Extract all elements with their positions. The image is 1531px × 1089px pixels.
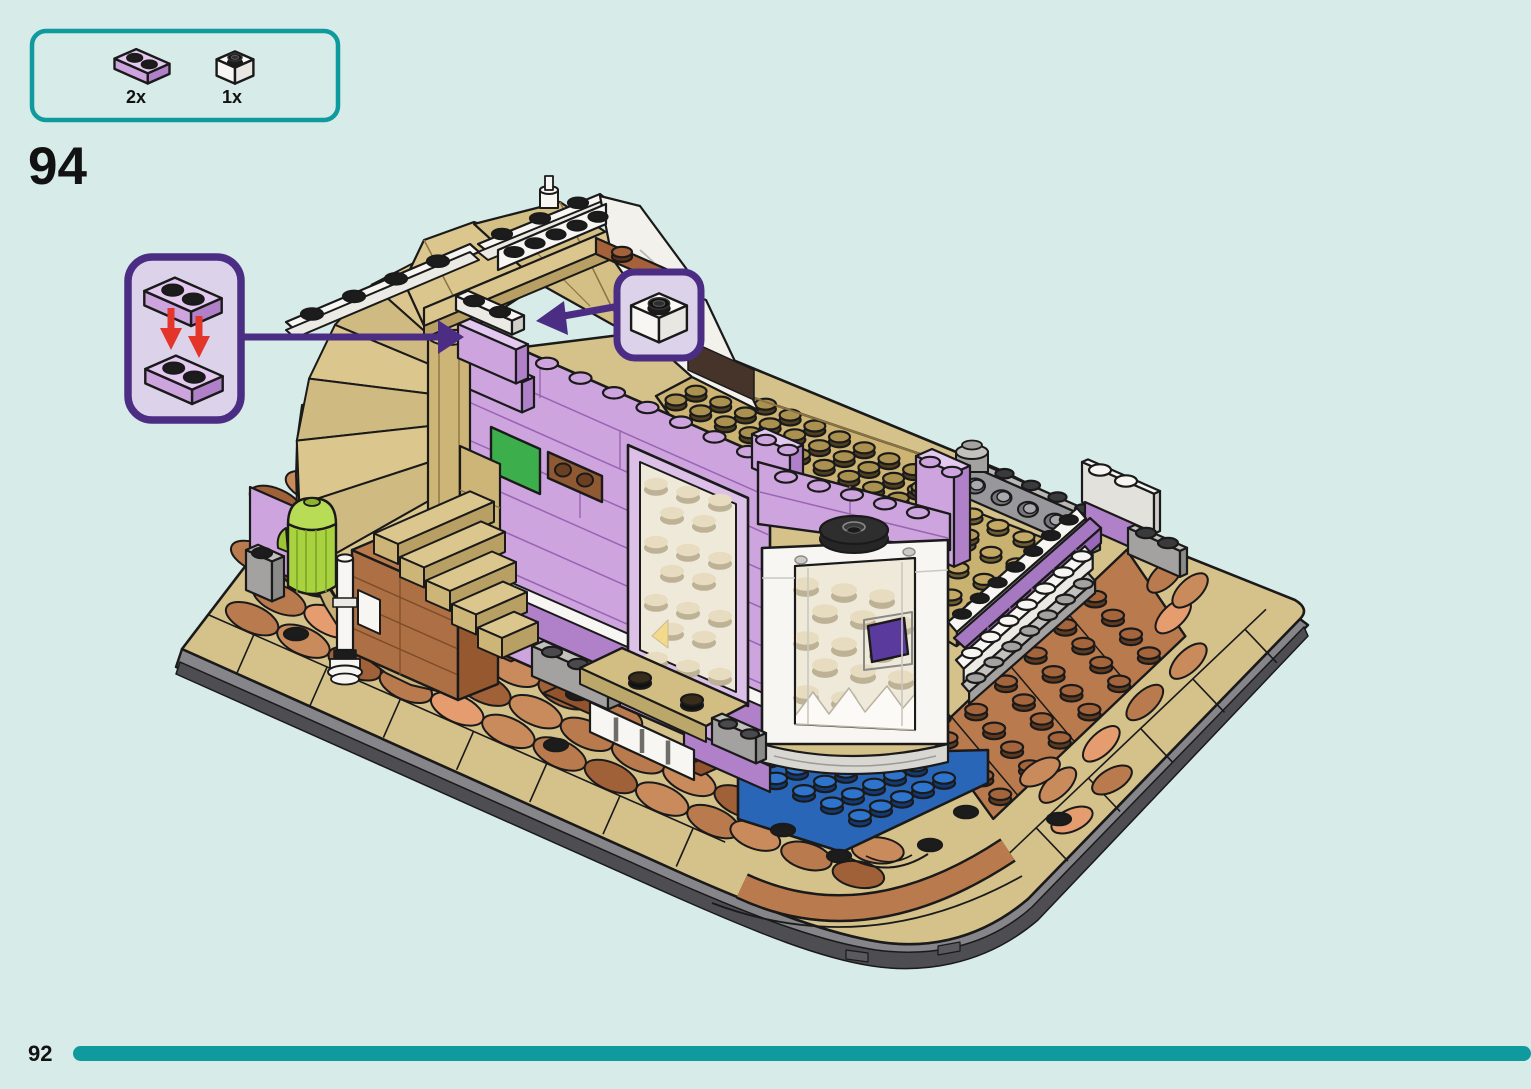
svg-text:2x: 2x <box>126 87 146 107</box>
svg-text:92: 92 <box>28 1041 52 1066</box>
svg-text:1x: 1x <box>222 87 242 107</box>
svg-text:94: 94 <box>28 137 87 196</box>
